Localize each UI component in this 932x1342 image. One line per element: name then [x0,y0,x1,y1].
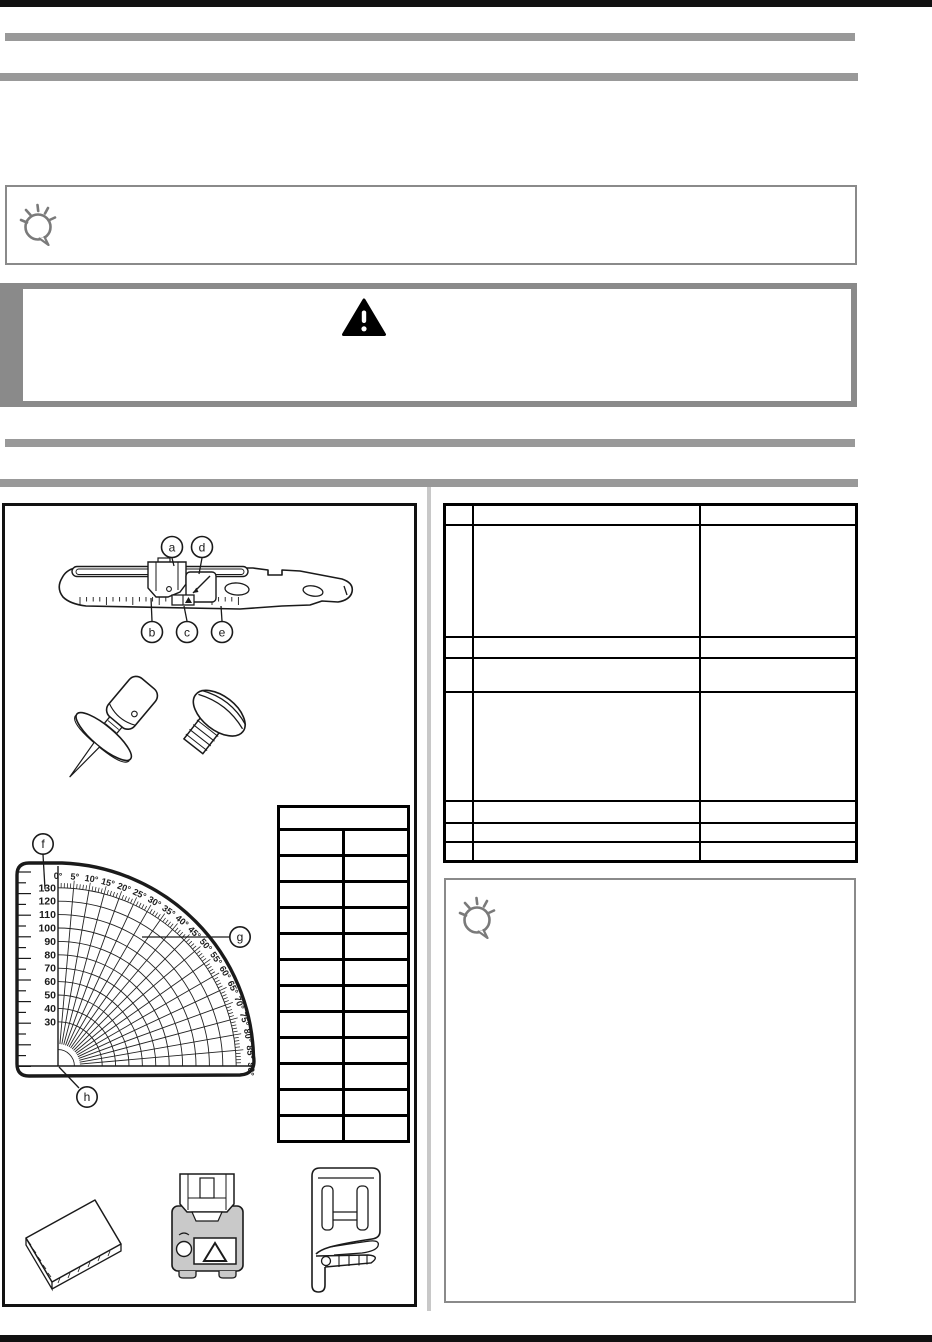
table-cell [445,637,473,658]
gauge-angle-label: 85° [245,1045,256,1060]
table-cell [445,842,473,862]
table-cell [445,505,473,525]
gauge-radius-label: 40 [44,1003,56,1015]
table-cell [473,801,700,823]
note-box [444,878,856,1303]
gauge-radius-label: 60 [44,976,56,988]
bottom-rule [0,1335,932,1342]
table-cell [279,882,344,908]
callout-b-label: b [149,626,156,640]
column-divider [427,487,431,1311]
screw-illustration [170,681,254,764]
table-cell [279,908,344,934]
table-row [279,807,409,830]
table-cell [344,830,409,856]
callout-label: g [237,930,244,944]
table-cell [279,1090,344,1116]
gauge-angle-label: 0° [54,871,63,881]
table-cell [279,1064,344,1090]
table-cell [279,960,344,986]
illustration-panel: a d b c e [2,503,417,1307]
gauge-radius-label: 80 [44,949,56,961]
table-row [279,1038,409,1064]
table-cell [700,692,857,801]
table-cell [344,908,409,934]
table-cell [473,525,700,637]
section-bar [0,73,858,81]
table-row [445,658,857,692]
accessories-illustration [15,1160,405,1304]
table-cell [445,692,473,801]
gauge-degree-tick [77,884,78,889]
pin-and-screw-illustration [30,665,260,800]
monogramming-foot-illustration [312,1168,380,1292]
table-row [445,525,857,637]
table-row [279,1012,409,1038]
gauge-radius-label: 110 [39,909,56,921]
section-bar [5,33,855,41]
table-row [445,823,857,842]
table-cell [344,960,409,986]
table-row [279,856,409,882]
table-cell [344,934,409,960]
circular-attachment-illustration: a d b c e [35,531,375,656]
callout-label: h [84,1090,91,1104]
top-rule [0,0,932,7]
table-cell [344,986,409,1012]
note-box [5,185,857,265]
pivot-pin-illustration [43,665,175,800]
callout-e-label: e [219,626,226,640]
table-cell [700,842,857,862]
parts-table [443,503,858,863]
table-row [445,842,857,862]
callout-d-label: d [199,541,206,555]
table-row [279,986,409,1012]
table-cell [344,1038,409,1064]
table-row [445,801,857,823]
gauge-radius-label: 70 [44,963,56,975]
table-cell [473,637,700,658]
table-cell [473,692,700,801]
table-cell [279,934,344,960]
table-row [279,830,409,856]
table-cell [344,1012,409,1038]
table-row [279,882,409,908]
table-cell [445,801,473,823]
table-cell [279,830,344,856]
table-cell [445,525,473,637]
table-cell [279,1038,344,1064]
table-cell [700,823,857,842]
caution-box [0,283,857,407]
table-cell [279,1012,344,1038]
table-cell [344,1090,409,1116]
section-bar [5,439,855,447]
gauge-angle-label: 90° [246,1062,256,1076]
table-cell [344,1064,409,1090]
radius-gauge-illustration: 130120110100908070605040300°5°10°15°20°2… [5,828,270,1113]
table-cell [700,658,857,692]
table-cell [279,1116,344,1142]
table-cell [700,525,857,637]
table-row [279,934,409,960]
gauge-radius-label: 120 [38,896,56,908]
felt-plate-illustration [26,1200,121,1289]
table-row [445,505,857,525]
lightbulb-icon [17,198,61,246]
table-cell [279,986,344,1012]
table-cell [344,882,409,908]
table-cell [700,801,857,823]
gauge-radius-label: 50 [44,990,56,1002]
gauge-radius-label: 130 [38,882,56,894]
table-cell [344,1116,409,1142]
table-row [279,1116,409,1142]
table-row [279,908,409,934]
gauge-radius-label: 90 [44,936,56,948]
table-row [445,692,857,801]
gauge-angle-label: 5° [70,871,80,882]
table-cell [279,807,409,830]
table-cell [344,856,409,882]
table-cell [445,823,473,842]
radius-reference-table [277,805,410,1143]
table-row [279,960,409,986]
table-row [279,1064,409,1090]
gauge-radius-label: 30 [44,1016,56,1028]
callout-c-label: c [184,626,190,640]
gauge-degree-tick [235,1047,240,1048]
table-cell [473,842,700,862]
table-cell [700,505,857,525]
callout-a-label: a [169,541,176,555]
table-cell [445,658,473,692]
table-cell [473,658,700,692]
table-cell [473,505,700,525]
table-cell [279,856,344,882]
table-row [279,1090,409,1116]
embroidery-foot-illustration [172,1174,243,1278]
manual-page: a d b c e [0,0,932,1342]
table-cell [473,823,700,842]
lightbulb-icon [456,891,500,939]
section-bar [0,479,858,487]
gauge-radius-label: 100 [38,923,56,935]
table-cell [700,637,857,658]
table-row [445,637,857,658]
warning-triangle-icon [341,297,387,337]
